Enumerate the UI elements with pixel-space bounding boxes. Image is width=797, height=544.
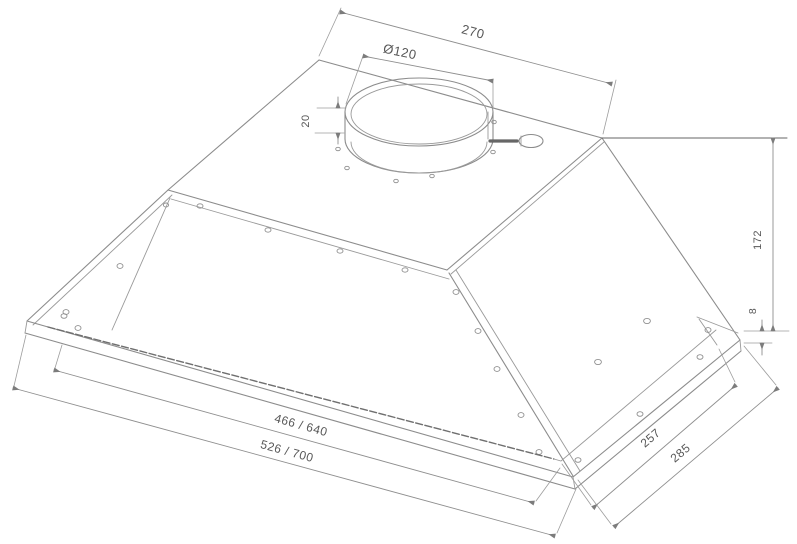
front-left-hem-line — [171, 199, 449, 279]
top-face-left-edge — [168, 60, 319, 190]
frame-front-right-inner — [554, 330, 716, 461]
collar-outer-rim — [345, 78, 493, 146]
dim-collar-height-label: 20 — [300, 114, 312, 127]
collar-inner-rim — [351, 84, 487, 144]
frame-lip-front-left — [25, 333, 575, 489]
left-corner-seam — [27, 190, 172, 330]
dim-outer-width-label: 526 / 700 — [259, 437, 315, 465]
power-cord — [488, 112, 543, 148]
frame-lip-cap-left — [25, 321, 27, 333]
frame-lip-front-right — [575, 351, 741, 489]
duct-collar — [345, 78, 493, 173]
top-face-right-edge — [319, 60, 602, 138]
frame-front-right-outer — [573, 340, 740, 477]
hood-body — [27, 60, 740, 476]
dim-frame-lip-label: 8 — [747, 308, 759, 314]
panel-holes — [595, 318, 651, 364]
mounting-frame — [25, 314, 741, 489]
frame-lip-cap-front — [573, 477, 575, 489]
dim-outer-depth-label: 285 — [668, 441, 693, 466]
dim-inner-depth: 257 — [562, 349, 736, 508]
dim-body-height: 172 — [602, 138, 789, 331]
dim-outer-width: 526 / 700 — [13, 335, 576, 536]
dim-inner-width-label: 466 / 640 — [273, 411, 329, 439]
dim-top-depth: 270 — [319, 8, 616, 134]
dim-inner-depth-label: 257 — [638, 426, 663, 451]
dim-inner-width: 466 / 640 — [54, 345, 560, 503]
frame-front-left-inner — [48, 327, 554, 459]
technical-drawing-canvas: 270 Ø120 20 172 8 — [0, 0, 797, 544]
dim-body-height-label: 172 — [752, 230, 764, 250]
cooker-hood-drawing: 270 Ø120 20 172 8 — [0, 0, 797, 544]
right-corner-seam — [602, 138, 740, 345]
dim-duct-diameter-label: Ø120 — [382, 41, 418, 63]
dimension-annotations: 270 Ø120 20 172 8 — [13, 8, 789, 536]
hem-screw-holes — [197, 204, 408, 272]
top-face-front-left-edge — [168, 190, 447, 270]
frame-lip-cap-right — [740, 340, 741, 351]
top-face-front-right-edge — [447, 138, 602, 270]
front-center-seam — [449, 270, 580, 476]
collar-base-roll — [351, 142, 487, 173]
cord-plug — [519, 135, 543, 148]
frame-holes — [61, 314, 703, 463]
dim-outer-depth: 285 — [578, 346, 778, 527]
dim-frame-lip: 8 — [744, 308, 772, 355]
dim-collar-height: 20 — [300, 97, 346, 144]
dim-duct-diameter: Ø120 — [346, 41, 493, 108]
dim-top-depth-label: 270 — [460, 21, 486, 41]
